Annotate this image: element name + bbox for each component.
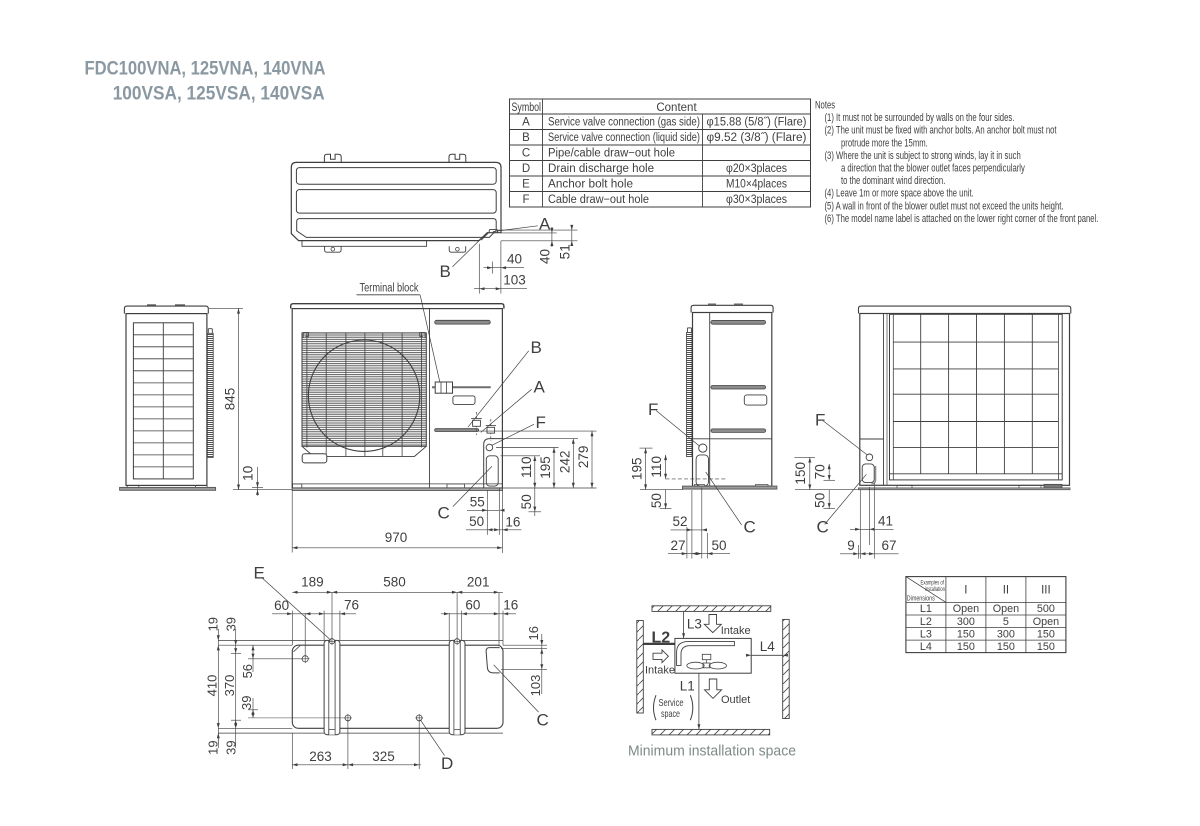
svg-text:325: 325 [372, 749, 395, 764]
svg-text:D: D [522, 163, 530, 175]
svg-text:A: A [539, 215, 551, 234]
svg-text:(6) The model name label is a: (6) The model name label is attached on … [825, 213, 1099, 226]
svg-text:Open: Open [953, 603, 979, 615]
svg-text:L2: L2 [920, 616, 932, 628]
svg-text:Outlet: Outlet [721, 694, 750, 706]
svg-text:a direction that the blower ou: a direction that the blower outlet faces… [841, 162, 1025, 175]
svg-text:space: space [661, 708, 680, 720]
svg-text:67: 67 [881, 538, 896, 553]
svg-text:150: 150 [1037, 628, 1055, 640]
svg-text:70: 70 [812, 464, 827, 479]
svg-text:C: C [438, 504, 450, 523]
svg-text:L1: L1 [680, 679, 695, 694]
svg-text:41: 41 [878, 514, 893, 529]
svg-text:Pipe/cable draw−out hole: Pipe/cable draw−out hole [548, 148, 675, 160]
svg-text:III: III [1041, 585, 1051, 597]
svg-text:103: 103 [503, 272, 526, 287]
svg-text:60: 60 [274, 598, 289, 613]
svg-text:F: F [522, 194, 529, 206]
svg-text:C: C [817, 518, 829, 537]
svg-text:C: C [537, 711, 549, 730]
svg-text:Minimum installation space: Minimum installation space [628, 744, 796, 760]
svg-text:L4: L4 [760, 639, 776, 654]
svg-text:300: 300 [957, 616, 975, 628]
svg-text:410: 410 [204, 675, 219, 697]
svg-text:A: A [534, 378, 546, 397]
svg-text:FDC100VNA, 125VNA, 140VNA: FDC100VNA, 125VNA, 140VNA [85, 59, 326, 80]
svg-text:263: 263 [309, 749, 332, 764]
svg-text:L3: L3 [920, 628, 932, 640]
svg-text:φ30×3places: φ30×3places [726, 194, 787, 206]
svg-text:B: B [440, 262, 451, 281]
svg-text:195: 195 [538, 456, 553, 479]
svg-text:Intake: Intake [721, 625, 751, 637]
svg-text:201: 201 [467, 575, 490, 590]
svg-text:16: 16 [505, 514, 520, 529]
svg-text:B: B [531, 338, 542, 357]
svg-text:76: 76 [344, 598, 359, 613]
svg-text:Content: Content [656, 102, 697, 114]
svg-text:to the dominant wind direction: to the dominant wind direction. [841, 175, 945, 188]
svg-text:10: 10 [240, 466, 255, 481]
svg-text:L1: L1 [920, 603, 932, 615]
svg-text:φ20×3places: φ20×3places [726, 163, 787, 175]
svg-text:27: 27 [670, 538, 685, 553]
svg-text:(4) Leave 1m or more space ab: (4) Leave 1m or more space above the uni… [825, 187, 974, 200]
svg-text:Service valve connection (liqu: Service valve connection (liquid side) [548, 132, 700, 144]
svg-text:Drain discharge hole: Drain discharge hole [548, 163, 654, 175]
svg-text:19: 19 [206, 617, 221, 631]
svg-text:56: 56 [240, 664, 255, 678]
svg-text:9: 9 [847, 538, 855, 553]
svg-text:φ15.88 (5/8˝) (Flare): φ15.88 (5/8˝) (Flare) [707, 117, 807, 129]
svg-text:C: C [522, 148, 530, 160]
svg-text:protrude more the 15mm.: protrude more the 15mm. [841, 137, 928, 150]
svg-text:50: 50 [519, 494, 534, 509]
svg-text:60: 60 [465, 598, 480, 613]
svg-text:F: F [815, 411, 825, 430]
svg-text:II: II [1003, 585, 1009, 597]
svg-text:39: 39 [239, 696, 254, 710]
svg-text:Anchor bolt hole: Anchor bolt hole [548, 179, 633, 191]
svg-text:5: 5 [1003, 616, 1009, 628]
svg-text:Symbol: Symbol [512, 102, 542, 114]
svg-text:E: E [522, 179, 530, 191]
svg-text:16: 16 [526, 626, 541, 640]
svg-text:Open: Open [1033, 616, 1059, 628]
svg-text:40: 40 [507, 251, 522, 266]
svg-text:150: 150 [793, 462, 808, 485]
svg-text:(5) A wall in front of the bl: (5) A wall in front of the blower outlet… [825, 200, 1064, 213]
svg-text:(2) The unit must be fixed wi: (2) The unit must be fixed with anchor b… [825, 124, 1057, 137]
svg-text:C: C [744, 518, 756, 537]
svg-text:50: 50 [711, 538, 726, 553]
svg-text:150: 150 [957, 641, 975, 653]
svg-text:50: 50 [469, 514, 484, 529]
svg-text:16: 16 [503, 598, 518, 613]
svg-text:E: E [254, 564, 265, 583]
svg-text:(3) Where the unit is subject: (3) Where the unit is subject to strong … [825, 150, 1021, 163]
svg-text:110: 110 [519, 456, 534, 478]
svg-text:52: 52 [672, 514, 687, 529]
svg-text:100VSA, 125VSA, 140VSA: 100VSA, 125VSA, 140VSA [113, 84, 325, 105]
svg-text:installation: installation [925, 586, 945, 593]
svg-text:F: F [648, 400, 658, 419]
svg-text:M10×4places: M10×4places [726, 179, 787, 191]
svg-text:845: 845 [222, 388, 237, 411]
svg-text:Terminal block: Terminal block [360, 283, 419, 295]
svg-text:580: 580 [383, 575, 406, 590]
svg-text:Cable draw−out hole: Cable draw−out hole [548, 194, 649, 206]
svg-text:(1) It must not be surrounded: (1) It must not be surrounded by walls o… [825, 112, 1015, 125]
svg-text:279: 279 [576, 446, 591, 469]
svg-text:39: 39 [223, 617, 238, 631]
svg-text:970: 970 [385, 530, 408, 545]
svg-text:110: 110 [649, 456, 664, 478]
svg-text:370: 370 [222, 675, 237, 697]
svg-text:50: 50 [812, 493, 827, 508]
svg-text:Dimensions: Dimensions [907, 594, 935, 603]
svg-text:40: 40 [538, 249, 553, 264]
svg-text:189: 189 [301, 575, 324, 590]
svg-text:50: 50 [649, 493, 664, 508]
svg-text:D: D [441, 754, 453, 773]
svg-text:Open: Open [993, 603, 1019, 615]
svg-text:51: 51 [557, 244, 572, 259]
svg-text:39: 39 [223, 740, 238, 754]
svg-text:55: 55 [470, 495, 485, 510]
svg-text:195: 195 [629, 458, 644, 481]
svg-text:150: 150 [997, 641, 1015, 653]
svg-text:I: I [964, 585, 967, 597]
svg-text:19: 19 [206, 740, 221, 754]
svg-text:300: 300 [997, 628, 1015, 640]
svg-text:500: 500 [1037, 603, 1055, 615]
svg-text:242: 242 [557, 451, 572, 474]
svg-text:L3: L3 [687, 617, 702, 632]
svg-text:A: A [522, 117, 530, 129]
svg-text:Service valve connection (gas: Service valve connection (gas side) [548, 117, 700, 129]
svg-text:150: 150 [957, 628, 975, 640]
svg-text:F: F [536, 413, 546, 432]
svg-text:L4: L4 [920, 641, 932, 653]
svg-text:B: B [522, 132, 530, 144]
svg-text:Intake: Intake [645, 665, 675, 677]
svg-text:φ9.52 (3/8˝) (Flare): φ9.52 (3/8˝) (Flare) [707, 132, 807, 144]
svg-text:Notes: Notes [815, 99, 835, 112]
svg-text:103: 103 [528, 675, 543, 697]
svg-text:150: 150 [1037, 641, 1055, 653]
